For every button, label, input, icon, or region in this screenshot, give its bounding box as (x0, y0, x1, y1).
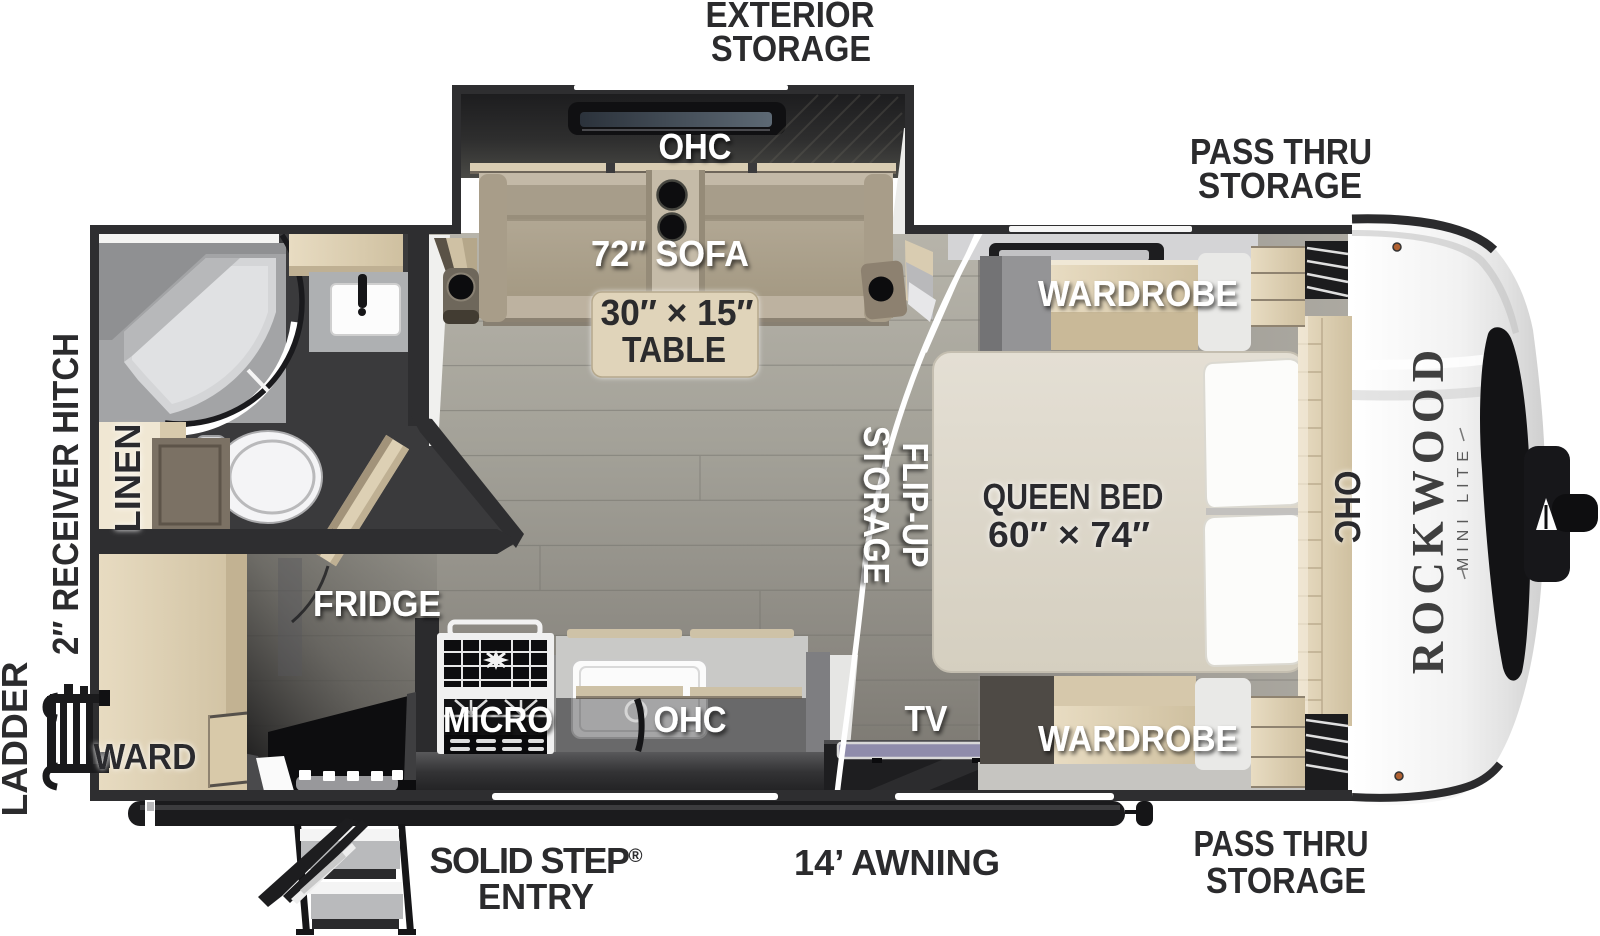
svg-text:60″ × 74″: 60″ × 74″ (988, 514, 1150, 555)
svg-text:OHC: OHC (654, 699, 727, 740)
svg-text:ENTRY: ENTRY (478, 876, 594, 917)
svg-text:LADDER: LADDER (0, 662, 35, 817)
svg-text:FRIDGE: FRIDGE (313, 583, 441, 624)
svg-text:30″ × 15″: 30″ × 15″ (601, 292, 754, 333)
svg-text:STORAGE: STORAGE (1198, 165, 1362, 206)
svg-text:WARD: WARD (94, 736, 197, 777)
svg-text:TABLE: TABLE (622, 329, 726, 370)
svg-text:72″ SOFA: 72″ SOFA (591, 233, 749, 274)
svg-text:LINEN: LINEN (107, 424, 148, 533)
svg-text:MINI LITE: MINI LITE (1455, 445, 1472, 571)
svg-text:OHC: OHC (659, 126, 732, 167)
svg-text:STORAGE: STORAGE (856, 426, 897, 584)
svg-text:OHC: OHC (1327, 471, 1368, 544)
svg-text:TV: TV (905, 698, 948, 739)
svg-text:STORAGE: STORAGE (1206, 860, 1366, 901)
svg-text:QUEEN BED: QUEEN BED (983, 476, 1164, 517)
svg-text:WARDROBE: WARDROBE (1038, 718, 1238, 759)
svg-text:ROCKWOOD: ROCKWOOD (1403, 344, 1453, 675)
svg-text:MICRO: MICRO (443, 699, 553, 740)
svg-text:SOLID STEP®: SOLID STEP® (429, 840, 642, 881)
svg-text:STORAGE: STORAGE (711, 28, 871, 69)
svg-text:FLIP-UP: FLIP-UP (895, 443, 936, 568)
svg-text:PASS THRU: PASS THRU (1194, 823, 1369, 864)
svg-text:2″ RECEIVER HITCH: 2″ RECEIVER HITCH (45, 333, 86, 655)
svg-text:WARDROBE: WARDROBE (1038, 273, 1238, 314)
svg-text:14’ AWNING: 14’ AWNING (794, 842, 1000, 883)
